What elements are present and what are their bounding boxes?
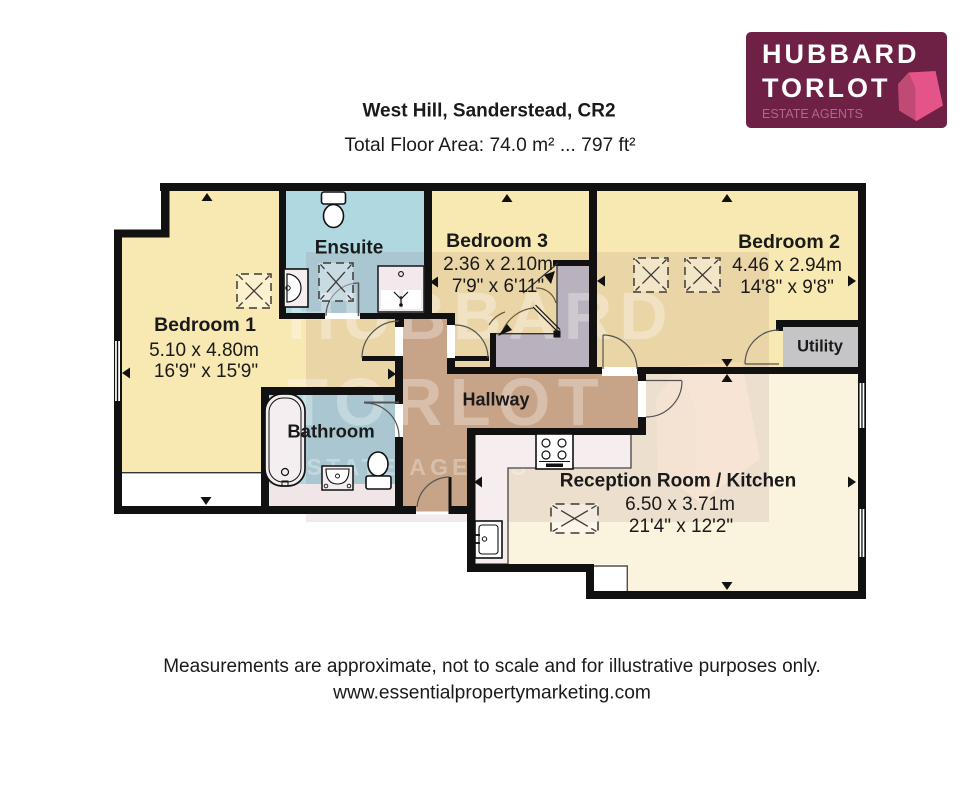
svg-text:www.essentialpropertymarketing: www.essentialpropertymarketing.com <box>332 683 651 704</box>
svg-text:5.10 x 4.80m: 5.10 x 4.80m <box>149 340 259 361</box>
svg-text:Ensuite: Ensuite <box>315 238 384 259</box>
svg-text:ESTATE AGENTS: ESTATE AGENTS <box>762 107 863 121</box>
svg-text:14'8" x 9'8": 14'8" x 9'8" <box>740 277 834 298</box>
svg-text:Total Floor Area: 74.0 m² ...: Total Floor Area: 74.0 m² ... 797 ft² <box>344 135 636 156</box>
svg-text:16'9" x 15'9": 16'9" x 15'9" <box>154 361 258 382</box>
svg-text:Hallway: Hallway <box>462 390 529 410</box>
svg-text:4.46 x 2.94m: 4.46 x 2.94m <box>732 255 842 276</box>
svg-text:Reception Room / Kitchen: Reception Room / Kitchen <box>560 471 796 492</box>
svg-text:7'9" x 6'11": 7'9" x 6'11" <box>452 276 544 297</box>
svg-text:TORLOT: TORLOT <box>762 73 891 103</box>
svg-text:21'4" x 12'2": 21'4" x 12'2" <box>629 516 733 537</box>
svg-text:Bathroom: Bathroom <box>287 421 374 442</box>
svg-text:Bedroom 1: Bedroom 1 <box>154 314 256 336</box>
svg-text:6.50 x 3.71m: 6.50 x 3.71m <box>625 494 735 515</box>
svg-text:West Hill, Sanderstead, CR2: West Hill, Sanderstead, CR2 <box>362 101 615 122</box>
svg-text:Utility: Utility <box>797 338 844 356</box>
svg-text:Bedroom 2: Bedroom 2 <box>738 231 840 253</box>
svg-text:Bedroom 3: Bedroom 3 <box>446 230 548 252</box>
svg-text:2.36 x 2.10m: 2.36 x 2.10m <box>443 254 553 275</box>
svg-text:HUBBARD: HUBBARD <box>762 39 920 69</box>
svg-text:Measurements are approximate,: Measurements are approximate, not to sca… <box>163 656 821 677</box>
